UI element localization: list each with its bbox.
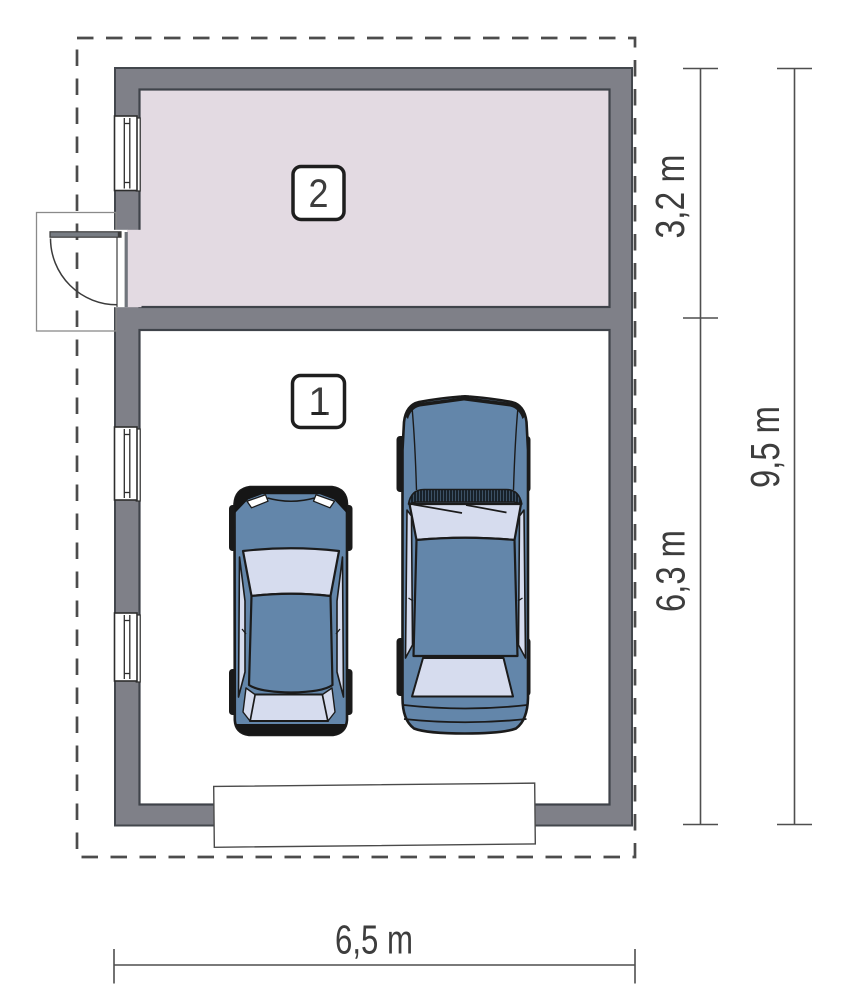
svg-text:6,3 m: 6,3 m — [648, 530, 694, 612]
svg-text:1: 1 — [308, 380, 330, 424]
svg-text:2: 2 — [309, 172, 329, 216]
svg-text:9,5 m: 9,5 m — [742, 406, 788, 488]
svg-text:3,2 m: 3,2 m — [647, 155, 693, 239]
svg-text:6,5 m: 6,5 m — [335, 917, 413, 963]
